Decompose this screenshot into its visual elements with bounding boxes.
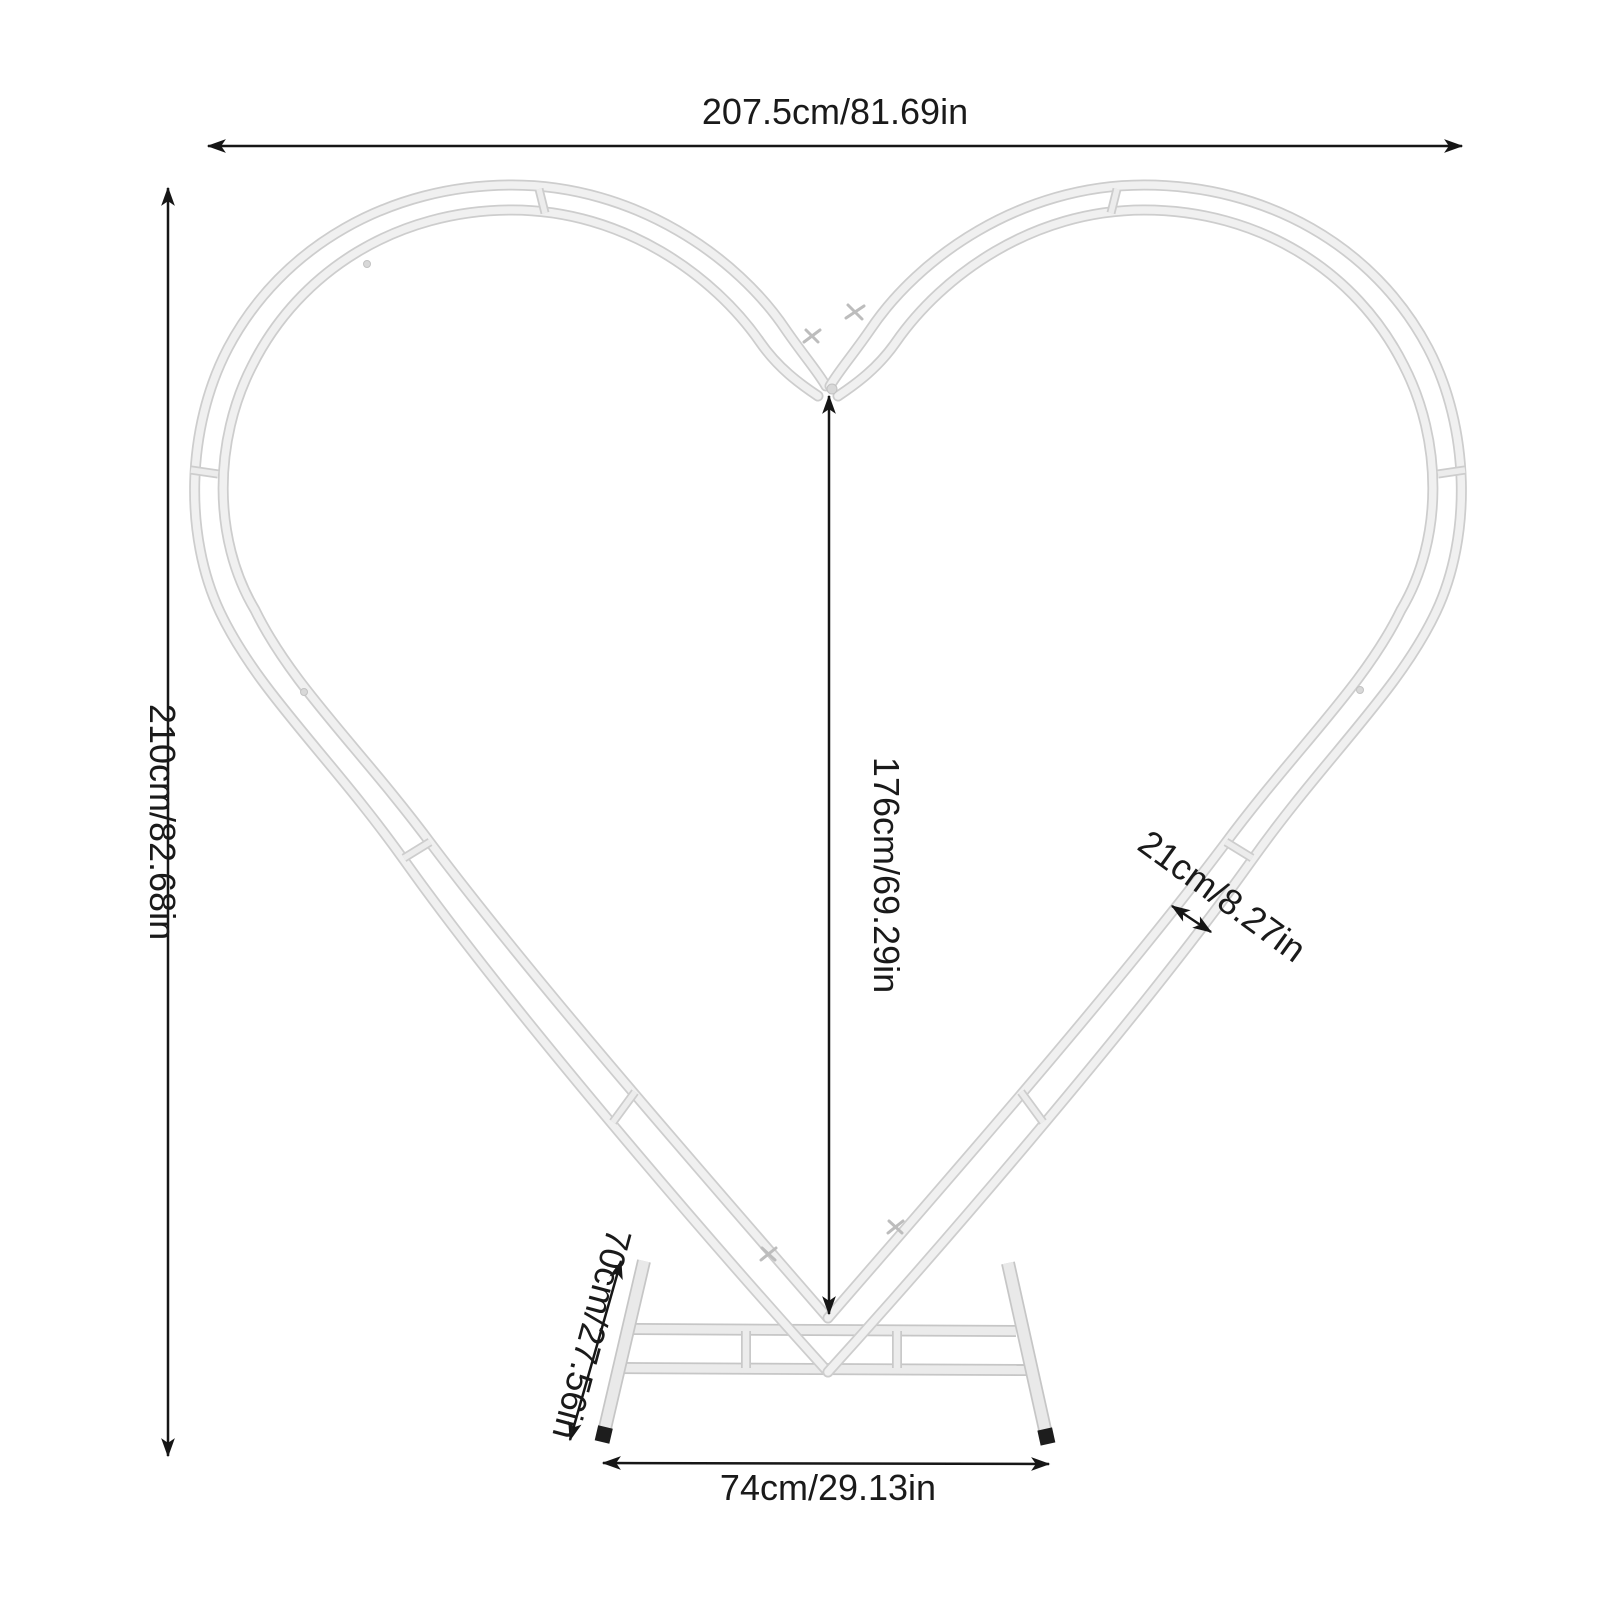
diagram-canvas: 207.5cm/81.69in 210cm/82.68in 176cm/69.2… (0, 0, 1600, 1600)
dim-center-height: 176cm/69.29in (829, 396, 907, 1314)
frame-rung-right-diagonal-lower (1021, 1092, 1043, 1122)
inner-tube-left (223, 210, 828, 1318)
base-right-foot (1008, 1263, 1048, 1444)
foot-cap-right (1045, 1429, 1048, 1444)
frame-rung-right-lobe-top (1111, 189, 1117, 213)
foot-cap-left (602, 1427, 606, 1442)
frame-rung-left-diagonal-lower (613, 1092, 635, 1122)
base (602, 1261, 1048, 1444)
base-upper-rail (628, 1329, 1016, 1331)
notch-connector (827, 384, 837, 394)
dim-base-width-line (603, 1463, 1049, 1464)
outer-tube-left (195, 185, 828, 1372)
dim-base-width: 74cm/29.13in (603, 1463, 1049, 1508)
frame-rung-left-lobe-side (191, 470, 218, 474)
notch-wing-screw-right (846, 305, 864, 319)
dim-total-height-label: 210cm/82.68in (142, 704, 183, 940)
dim-base-width-label: 74cm/29.13in (720, 1467, 936, 1508)
frame-rung-left-lobe-top (539, 189, 545, 213)
frame-rung-left-diagonal-upper (404, 842, 430, 858)
dim-total-width-label: 207.5cm/81.69in (702, 91, 968, 132)
dimension-diagram: 207.5cm/81.69in 210cm/82.68in 176cm/69.2… (0, 0, 1600, 1600)
dim-center-height-label: 176cm/69.29in (866, 757, 907, 993)
inner-tube-right (828, 210, 1433, 1318)
tube-seam-right-side (1357, 687, 1364, 694)
notch-wing-screw-left (804, 330, 820, 342)
tube-seam-left-side (301, 689, 308, 696)
tube-seam-left-lobe (364, 261, 371, 268)
dim-total-width: 207.5cm/81.69in (208, 91, 1462, 146)
frame-rung-right-diagonal-upper (1226, 842, 1252, 858)
dim-total-height: 210cm/82.68in (142, 188, 183, 1456)
outer-tube-right (828, 185, 1461, 1372)
frame-rung-right-lobe-side (1438, 470, 1465, 474)
